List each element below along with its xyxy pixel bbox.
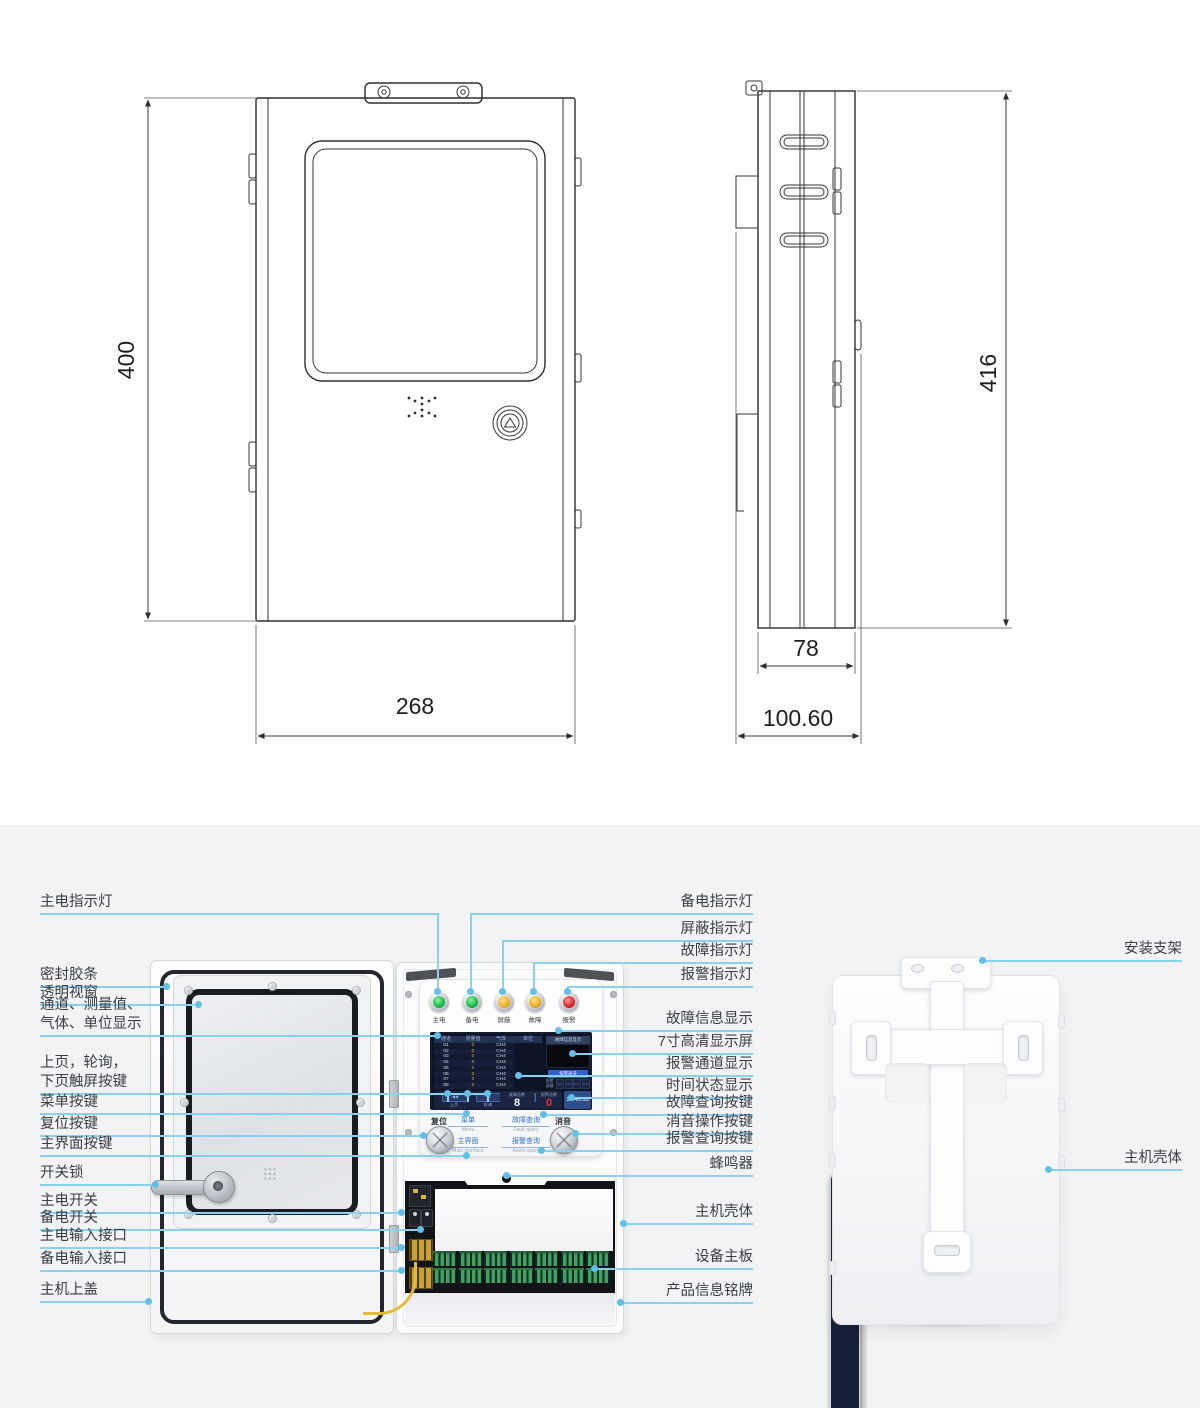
fault-led [525,992,545,1012]
callout-dot [463,1110,470,1117]
callout-channel-display: 通道、测量值、 气体、单位显示 [40,996,142,1034]
led-label: 故障 [522,1014,548,1024]
front-cabinet-outline [256,83,575,621]
callout-dot [398,1209,405,1216]
led-label: 备电 [459,1014,485,1024]
callout-line [40,1093,487,1095]
main-power-led [429,992,449,1012]
callout-touch-keys: 上页，轮询， 下页触屏按键 [40,1054,127,1092]
callout-dot [398,1244,405,1251]
status-label: 报警 [546,1079,554,1083]
callout-dot [145,1298,152,1305]
fault-info-panel: 故障信息显示 报警通道 报警屏蔽 [546,1036,590,1089]
callout-line [40,1301,148,1303]
callout-line [470,913,472,991]
alarm-channel-grid [556,1079,590,1089]
callout-host-shell-back: 主机壳体 [1124,1149,1182,1168]
edge-tab [829,1011,836,1025]
alarm-led [559,992,579,1012]
callout-dot [540,1111,547,1118]
terminal-blocks [433,1251,613,1285]
callout-main-ui-key: 主界面按键 [40,1135,113,1154]
callout-backup-power-switch: 备电开关 [40,1209,98,1228]
callout-dot [572,1130,579,1137]
callout-dot [467,988,474,995]
callout-line [533,962,753,964]
table-header: 单位 [514,1036,542,1043]
side-body-details [736,81,861,628]
callout-main-power-led: 主电指示灯 [40,893,113,912]
edge-tab [1058,1098,1065,1112]
cabinet-back-view [832,975,1060,1325]
callout-line [567,986,753,988]
bracket-bottom-tab [923,1231,971,1273]
callout-fault-query-key: 故障查询按键 [666,1094,753,1113]
callout-alarm-channel: 报警通道显示 [666,1055,753,1074]
front-view-drawing: 400 268 [100,58,660,758]
status-label: 屏蔽 [546,1084,554,1088]
fault-total-box: 故障总数8 [500,1091,534,1109]
edge-tab [1058,1156,1065,1170]
fault-info-window [546,1044,590,1068]
main-power-input-connector [409,1239,433,1261]
callout-dot [515,1072,522,1079]
annotated-photo-section: 主电 备电 屏蔽 故障 报警 通道 测量值 气体 单位 010CH4%LEL [0,825,1200,1408]
callout-dot [163,983,170,990]
bracket-right-plate [1003,1021,1043,1075]
screw-icon [405,991,412,998]
cabinet-door-open [150,960,394,1334]
front-extension-lines [144,98,575,744]
callout-line [533,962,535,991]
callout-host-shell: 主机壳体 [695,1203,753,1222]
callout-dot [499,988,506,995]
main-unit-interior: 主电 备电 屏蔽 故障 报警 通道 测量值 气体 单位 010CH4%LEL [396,962,624,1334]
callout-dot [555,1027,562,1034]
callout-dot [463,1152,470,1159]
callout-dot [617,1299,624,1306]
side-height-dim: 416 [975,354,1001,392]
callout-dot [417,1226,424,1233]
front-dimension-lines [148,100,573,736]
channel-table: 通道 测量值 气体 单位 010CH4%LEL 020CH4%LEL 030CH… [434,1036,544,1089]
edge-tab [829,1096,836,1110]
callout-line [620,1302,753,1304]
enclosure-floor [405,1293,615,1326]
side-total-depth-dim: 100.60 [763,705,833,731]
callout-line [506,1175,753,1177]
side-depth-dim: 78 [793,635,819,661]
callout-dot [564,988,571,995]
callout-line [40,1247,401,1249]
spec-sheet: 400 268 [0,0,1200,1408]
backup-power-led [462,992,482,1012]
side-body-outline [758,91,855,628]
callout-line [541,1150,753,1152]
callout-dot [979,957,986,964]
mainboard-cover [435,1189,613,1251]
callout-line [623,1223,753,1225]
callout-main-power-input: 主电输入接口 [40,1227,127,1246]
callout-line [40,1184,155,1186]
speaker-grill-icon [263,1167,277,1181]
callout-dot [568,1094,575,1101]
callout-alarm-query-key: 报警查询按键 [666,1130,753,1149]
callout-dot [152,1181,159,1188]
callout-dot [591,1265,598,1272]
bracket-notch [885,1063,929,1103]
front-height-dim: 400 [113,341,139,379]
callout-mounting-bracket: 安装支架 [1124,940,1182,959]
callout-line [982,960,1182,962]
callout-dot [464,1090,471,1097]
reset-knob [426,1126,454,1154]
shield-led [494,992,514,1012]
callout-fault-led: 故障指示灯 [681,942,754,961]
bracket-spine [930,981,964,1237]
callout-shield-led: 屏蔽指示灯 [681,920,754,939]
callout-dot [530,988,537,995]
callout-dot [434,988,441,995]
callout-line [437,913,439,991]
edge-tab [1058,1014,1065,1028]
callout-alarm-led: 报警指示灯 [681,966,754,985]
callout-line [594,1268,753,1270]
callout-menu-key: 菜单按键 [40,1093,98,1112]
callout-dot [620,1220,627,1227]
led-label: 屏蔽 [491,1014,517,1024]
main-power-switch [409,1209,421,1227]
callout-line [1048,1169,1182,1171]
menu-button-label: 菜单Menu [448,1116,488,1133]
table-header: 测量值 [458,1036,488,1043]
edge-tab [829,1261,836,1275]
callout-fault-info: 故障信息显示 [666,1010,753,1029]
callout-dot [569,1050,576,1057]
callout-line [40,913,437,915]
edge-tab [829,1154,836,1168]
callout-backup-led: 备电指示灯 [681,893,754,912]
callout-dot [538,1147,545,1154]
table-header: 气体 [488,1036,514,1043]
callout-line [40,1270,401,1272]
front-width-dim: 268 [396,693,434,719]
side-extension-lines [736,91,1012,744]
alarm-channel-tab: 报警通道 [548,1070,588,1078]
led-label: 报警 [556,1014,582,1024]
callout-line [502,940,504,991]
callout-dot [398,1267,405,1274]
fault-query-button-label: 故障查询Fault query [502,1116,550,1133]
callout-line [40,1113,466,1115]
callout-dot [484,1090,491,1097]
callout-buzzer: 蜂鸣器 [710,1155,754,1174]
alarm-total-box: 报警总数0 [536,1091,562,1109]
callout-backup-power-input: 备电输入接口 [40,1250,127,1269]
lock-boss [203,1171,235,1203]
front-cabinet-details [249,86,581,621]
callout-display-7inch: 7寸高清显示屏 [658,1033,753,1052]
bracket-notch [963,1063,1007,1103]
callout-seal-strip: 密封胶条 [40,966,98,985]
pcb-component [409,1185,431,1207]
callout-reset-key: 复位按键 [40,1115,98,1134]
callout-dot [1045,1166,1052,1173]
callout-mainboard: 设备主板 [695,1248,753,1267]
clock-display: 10:46:55 [564,1091,591,1109]
callout-nameplate: 产品信息铭牌 [666,1282,753,1301]
callout-dot [444,1090,451,1097]
nav-label: 上页 [442,1102,466,1108]
callout-line [40,1155,466,1157]
fault-info-title: 故障信息显示 [546,1036,590,1044]
led-label: 主电 [426,1014,452,1024]
callout-dot [503,1172,510,1179]
callout-dot [420,1132,427,1139]
callout-lock: 开关锁 [40,1164,84,1183]
screw-icon [610,991,617,998]
backup-power-switch [421,1209,433,1227]
callout-dot [195,1001,202,1008]
front-speaker-icon [408,397,437,418]
callout-line [40,1035,437,1037]
side-view-drawing: 416 78 100.60 [700,58,1080,758]
callout-top-cover: 主机上盖 [40,1281,98,1300]
callout-line [558,1030,753,1032]
callout-dot [434,1032,441,1039]
nav-label: 轮询 [476,1102,500,1108]
table-row: 080CH4%LEL [434,1083,544,1089]
side-dimension-lines [738,93,1006,736]
callout-line [470,913,753,915]
